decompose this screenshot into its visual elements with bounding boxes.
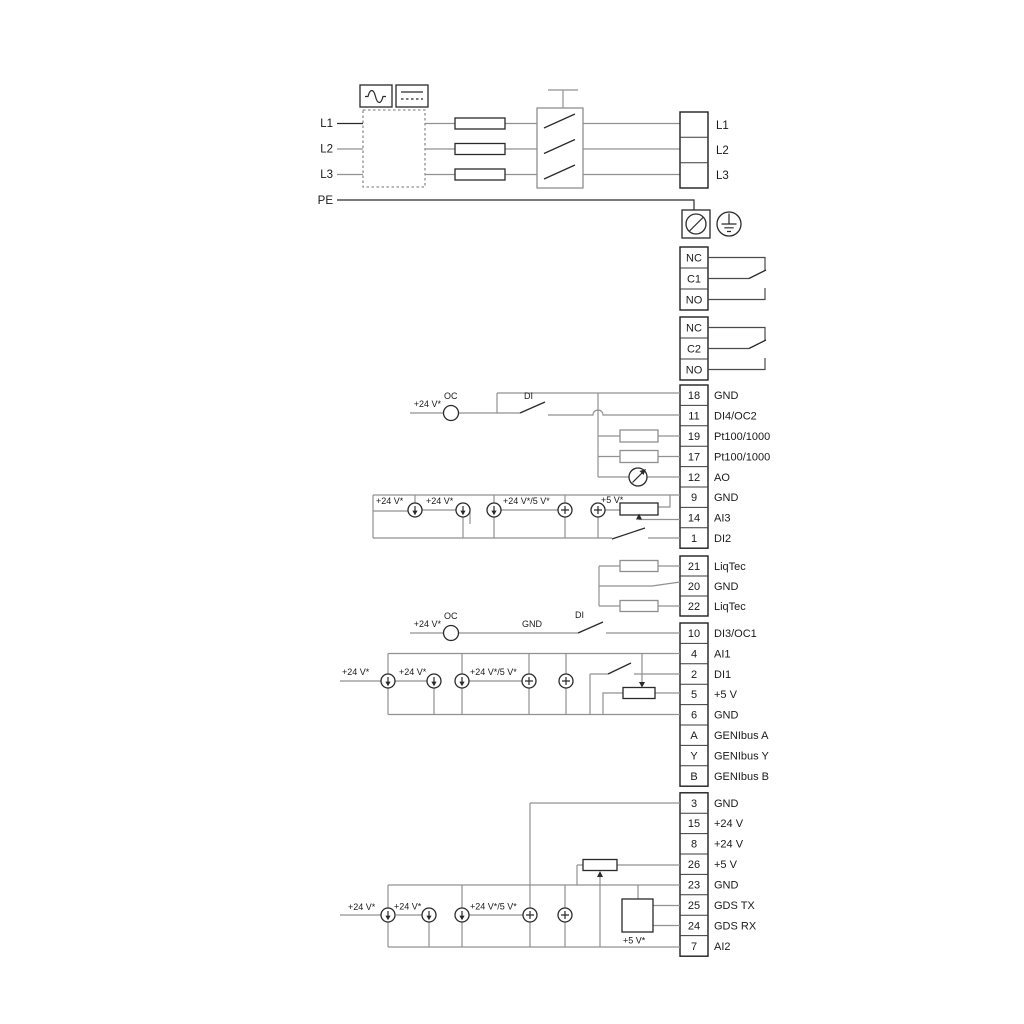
- wire-label: +24 V*/5 V*: [470, 667, 517, 677]
- terminal-number: 19: [688, 431, 700, 443]
- terminal-number: 15: [688, 818, 700, 830]
- terminal-label: GND: [714, 798, 739, 810]
- terminal-label: AI2: [714, 941, 731, 953]
- current-source-icon: [487, 503, 501, 517]
- ac-icon: [360, 85, 392, 107]
- terminal-number: 12: [688, 472, 700, 484]
- terminal-label: GND: [714, 581, 739, 593]
- terminal-label: GDS RX: [714, 921, 757, 933]
- wire-label: GND: [522, 619, 543, 629]
- dc-icon: [396, 85, 428, 107]
- voltage-source-icon: [558, 908, 572, 922]
- wire-label: DI: [524, 391, 533, 401]
- terminal-label: Pt100/1000: [714, 431, 770, 443]
- relay-terminal-label: NC: [686, 323, 702, 335]
- voltage-source-icon: [522, 674, 536, 688]
- current-source-icon: [455, 908, 469, 922]
- terminal-number: B: [690, 771, 697, 783]
- current-source-icon: [381, 674, 395, 688]
- current-source-icon: [381, 908, 395, 922]
- terminal-label: GND: [714, 710, 739, 722]
- terminal-number: 21: [688, 561, 700, 573]
- relay-terminal-label: NO: [686, 365, 703, 377]
- fuses: [455, 118, 505, 180]
- terminal-label: LiqTec: [714, 561, 746, 573]
- voltage-source-icon: [523, 908, 537, 922]
- wire-label: +24 V*: [394, 902, 422, 912]
- terminal-number: 1: [691, 533, 697, 545]
- wire-label: OC: [444, 611, 458, 621]
- voltage-source-icon: [558, 503, 572, 517]
- terminal-label: GND: [714, 390, 739, 402]
- wire-label: OC: [444, 391, 458, 401]
- terminal-label: GND: [714, 492, 739, 504]
- wire-label: +5 V*: [601, 495, 624, 505]
- output-label-l1: L1: [716, 120, 729, 132]
- terminal-number: 14: [688, 513, 700, 525]
- analog-output-gauge-icon: [629, 468, 647, 486]
- terminal-number: 25: [688, 900, 700, 912]
- wire-label: +24 V*: [348, 902, 376, 912]
- fuse-l1: [455, 118, 505, 129]
- emc-filter-box: [363, 110, 425, 187]
- pt100-resistor-icon: [620, 430, 658, 442]
- fuse-l3: [455, 169, 505, 180]
- voltage-source-icon: [591, 503, 605, 517]
- terminal-number: 6: [691, 710, 697, 722]
- mains-label-l1: L1: [320, 118, 333, 130]
- earth-ground-icon: [717, 212, 741, 236]
- gds-sensor-box: [622, 899, 653, 932]
- terminal-label: GENIbus B: [714, 771, 769, 783]
- pe-screw-terminal-icon: [682, 210, 710, 238]
- terminal-label: DI2: [714, 533, 731, 545]
- terminal-number: 4: [691, 649, 697, 661]
- terminal-number: 3: [691, 798, 697, 810]
- wire-label: +24 V*: [399, 667, 427, 677]
- terminal-number: 24: [688, 921, 700, 933]
- terminal-number: 26: [688, 859, 700, 871]
- open-collector-icon: [444, 406, 459, 421]
- wiring-diagram: L1 L2 L3 PE L1 L2 L3 NC C1 NO NC C2 NO: [0, 0, 1024, 1024]
- fuse-l2: [455, 144, 505, 155]
- current-source-icon: [408, 503, 422, 517]
- terminal-label: Pt100/1000: [714, 452, 770, 464]
- terminal-number: 20: [688, 581, 700, 593]
- relay-terminal-label: NO: [686, 295, 703, 307]
- terminal-number: 9: [691, 492, 697, 504]
- terminal-label: AI1: [714, 649, 731, 661]
- terminal-label: GENIbus Y: [714, 751, 769, 763]
- mains-label-l3: L3: [320, 169, 333, 181]
- pt100-resistor-icon: [620, 451, 658, 463]
- terminal-label: GDS TX: [714, 900, 755, 912]
- wire-label: +24 V*: [342, 667, 370, 677]
- output-label-l2: L2: [716, 145, 729, 157]
- terminal-number: 5: [691, 689, 697, 701]
- relay-terminal-label: NC: [686, 253, 702, 265]
- wire-label: +24 V*: [376, 496, 404, 506]
- current-source-icon: [422, 908, 436, 922]
- disconnect-switch: [537, 108, 583, 188]
- wire-label: DI: [575, 610, 584, 620]
- terminal-number: 17: [688, 452, 700, 464]
- potentiometer-icon: [620, 503, 658, 515]
- wire-label: +24 V*/5 V*: [503, 496, 550, 506]
- wire-label: +24 V*: [414, 399, 442, 409]
- terminal-label: +5 V: [714, 859, 738, 871]
- terminal-number: Y: [690, 751, 698, 763]
- terminal-label: LiqTec: [714, 601, 746, 613]
- current-source-icon: [427, 674, 441, 688]
- terminal-label: DI3/OC1: [714, 628, 757, 640]
- wire-label: +24 V*: [414, 619, 442, 629]
- terminal-label: DI1: [714, 669, 731, 681]
- terminal-label: GENIbus A: [714, 730, 769, 742]
- terminal-label: AI3: [714, 513, 731, 525]
- terminal-number: 7: [691, 941, 697, 953]
- wire-label: +5 V*: [623, 936, 646, 946]
- potentiometer-icon: [583, 860, 617, 871]
- mains-label-pe: PE: [318, 195, 334, 207]
- current-source-icon: [455, 674, 469, 688]
- voltage-source-icon: [559, 674, 573, 688]
- terminal-label: GND: [714, 880, 739, 892]
- mains-label-l2: L2: [320, 144, 333, 156]
- terminal-number: 11: [688, 411, 699, 423]
- terminal-number: 18: [688, 390, 700, 402]
- output-terminal-block: [680, 112, 708, 188]
- liqtec-sensor-icon: [620, 601, 658, 612]
- relay-terminal-label: C2: [687, 344, 701, 356]
- terminal-number: 8: [691, 839, 697, 851]
- terminal-label: DI4/OC2: [714, 411, 757, 423]
- wire-label: +24 V*: [426, 496, 454, 506]
- terminal-label: +24 V: [714, 818, 744, 830]
- potentiometer-icon: [623, 688, 655, 699]
- terminal-label: +5 V: [714, 689, 738, 701]
- terminal-number: A: [690, 730, 698, 742]
- terminal-number: 23: [688, 880, 700, 892]
- wiring-diagram-page: L1 L2 L3 PE L1 L2 L3 NC C1 NO NC C2 NO: [0, 0, 1024, 1024]
- terminal-number: 22: [688, 601, 700, 613]
- terminal-number: 10: [688, 628, 700, 640]
- terminal-number: 2: [691, 669, 697, 681]
- current-source-icon: [456, 503, 470, 517]
- output-label-l3: L3: [716, 170, 729, 182]
- terminal-label: +24 V: [714, 839, 744, 851]
- terminal-label: AO: [714, 472, 730, 484]
- open-collector-icon: [444, 626, 459, 641]
- wire-label: +24 V*/5 V*: [470, 902, 517, 912]
- relay-terminal-label: C1: [687, 274, 701, 286]
- liqtec-sensor-icon: [620, 561, 658, 572]
- background: [0, 0, 1024, 1024]
